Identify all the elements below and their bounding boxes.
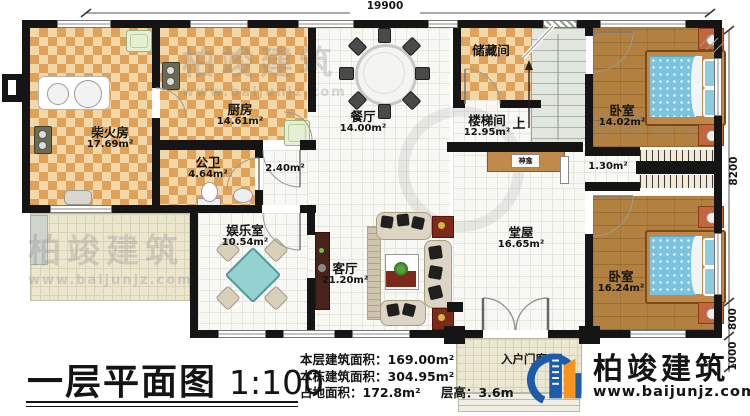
stairs-up-arrowhead <box>525 60 533 70</box>
stat-row: 本栋建筑面积：304.95m² <box>300 369 514 386</box>
stat-label: 本栋建筑面积： <box>300 369 388 384</box>
brand-website: www.baijunjz.com <box>593 385 750 400</box>
area-stats: 本层建筑面积：169.00m² 本栋建筑面积：304.95m² 占地面积：172… <box>300 352 514 402</box>
shrine-label: 神龛 <box>511 154 540 168</box>
title-underline <box>26 401 298 403</box>
brand-logo-icon <box>527 345 589 409</box>
drawing-title-text: 一层平面图 <box>27 353 217 405</box>
door-arc <box>156 88 186 118</box>
brand-logo: 柏竣建筑 www.baijunjz.com <box>527 345 750 409</box>
brand-text: 柏竣建筑 www.baijunjz.com <box>593 355 750 400</box>
stat-value: 172.8m² <box>363 385 421 400</box>
stairs-up-label: 上 <box>512 118 525 132</box>
stairs-break-line <box>523 26 553 58</box>
stat-value: 3.6m <box>478 385 513 400</box>
stat-value: 169.00m² <box>388 352 455 367</box>
stat-row: 本层建筑面积：169.00m² <box>300 352 514 369</box>
dimension-top: 19900 <box>355 0 415 12</box>
room-label-dining: 餐厅 14.00m² <box>340 110 386 134</box>
stat-label: 本层建筑面积： <box>300 352 388 367</box>
room-label-storage: 储藏间 <box>472 44 510 58</box>
room-label-stairwell: 楼梯间 12.95m² <box>464 114 510 138</box>
french-door-arc <box>516 298 548 330</box>
room-label-corridor: 2.40m² <box>265 164 304 175</box>
door-arc <box>465 69 500 104</box>
door-arc <box>227 158 259 190</box>
room-label-bathroom: 公卫 4.64m² <box>188 156 227 180</box>
french-door-arc <box>483 298 515 330</box>
stat-label: 占地面积： <box>300 385 363 400</box>
room-label-living: 客厅 21.20m² <box>322 262 368 286</box>
floor-plan-page: 柏竣建筑 www.baijunjz.com 柏竣建筑 www.baijunjz.… <box>0 0 750 416</box>
corner-hatch <box>700 34 724 54</box>
stat-value: 304.95m² <box>388 369 455 384</box>
dimension-right-mid: 800 <box>727 304 739 334</box>
stat-row: 占地面积：172.8m² 层高：3.6m <box>300 385 514 402</box>
room-label-entertainment: 娱乐室 10.54m² <box>222 224 268 248</box>
room-label-main-hall: 堂屋 16.65m² <box>498 226 544 250</box>
dimension-right-main: 8200 <box>728 151 740 191</box>
room-label-kitchen: 厨房 14.61m² <box>217 103 263 127</box>
door-arc <box>263 213 300 250</box>
title-underline <box>26 406 298 407</box>
brand-name: 柏竣建筑 <box>593 355 750 385</box>
door-arc <box>284 112 312 140</box>
door-arc <box>593 196 633 236</box>
drawing-title: 一层平面图 1:100 <box>27 353 324 405</box>
room-label-firewood: 柴火房 17.69m² <box>87 126 133 150</box>
door-arc <box>593 32 633 72</box>
stat-label: 层高： <box>441 385 479 400</box>
room-label-bedroom-top: 卧室 14.02m² <box>599 104 645 128</box>
room-label-closet: 1.30m² <box>588 162 627 173</box>
room-label-bedroom-bottom: 卧室 16.24m² <box>598 270 644 294</box>
